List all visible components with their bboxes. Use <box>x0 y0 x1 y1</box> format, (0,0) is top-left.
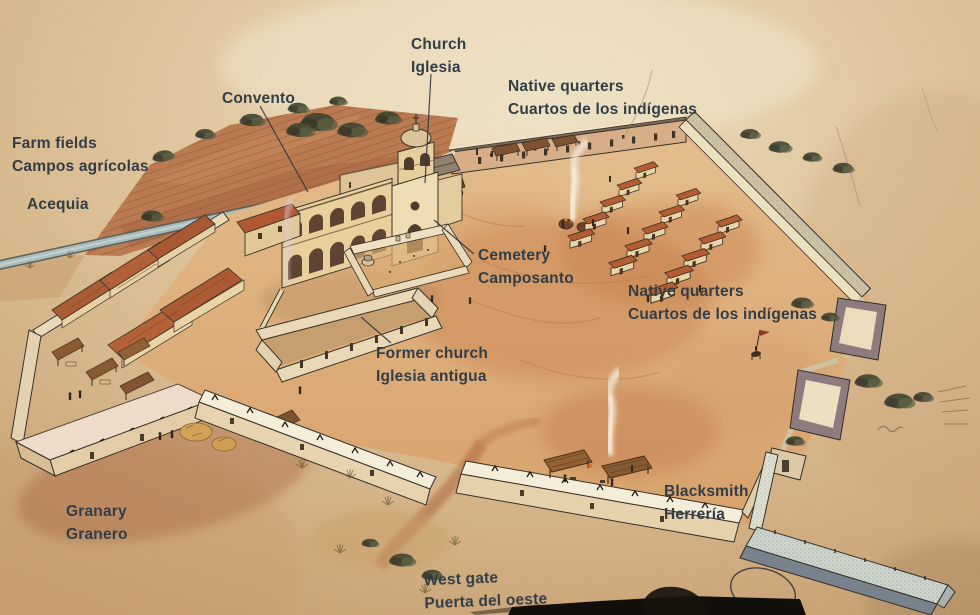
mission-illustration <box>0 0 980 615</box>
mission-sign-photo: Farm fields Campos agrícolas Acequia Con… <box>0 0 980 615</box>
